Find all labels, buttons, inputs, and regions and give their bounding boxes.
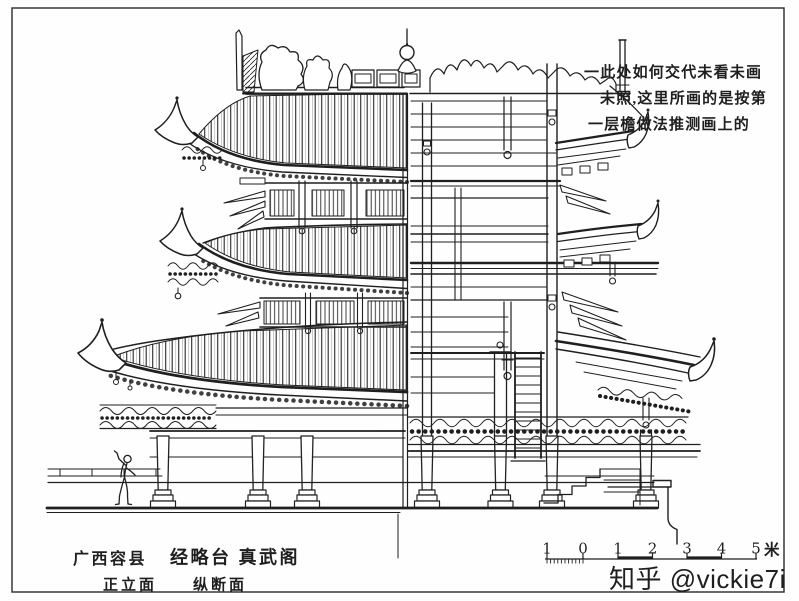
label-longitudinal-section: 纵断面 xyxy=(193,576,247,594)
hanging-post xyxy=(502,97,513,159)
eave-horn-low-left xyxy=(78,322,126,371)
eave-horn-mid-right xyxy=(637,203,658,239)
scale-bar: 1 0 1 2 3 4 5 米 xyxy=(542,540,780,564)
eave-horn-top-left xyxy=(155,100,198,145)
scale-tick-label: 3 xyxy=(682,540,692,558)
porch-column xyxy=(295,436,320,508)
roof-tier-top xyxy=(155,93,407,182)
right-eave-lower xyxy=(556,332,716,412)
ridge-beast-3 xyxy=(338,64,352,90)
label-front-elevation: 正立面 xyxy=(103,576,157,594)
roof-tier-middle xyxy=(160,207,407,298)
scale-tick-label: 1 xyxy=(542,540,552,558)
terrace-ground xyxy=(47,469,677,544)
section-beams xyxy=(411,101,658,393)
ridge-beast-2 xyxy=(303,56,332,90)
drawing-canvas: 一此处如何交代未看未画 未照,这里所画的是按第 一层檐做法推测画上的 广西容县 … xyxy=(0,0,799,601)
annotation-note: 一此处如何交代未看未画 未照,这里所画的是按第 一层檐做法推测画上的 xyxy=(584,63,767,133)
scanned-architectural-drawing: 一此处如何交代未看未画 未照,这里所画的是按第 一层檐做法推测画上的 广西容县 … xyxy=(0,0,799,601)
scale-tick-label: 4 xyxy=(717,540,727,558)
scale-tick-label: 0 xyxy=(578,540,588,558)
ground-floor-colonnade xyxy=(150,431,405,508)
roof-finial xyxy=(398,29,416,73)
ridge-beast-1 xyxy=(259,45,303,90)
eave-bracket-band xyxy=(100,405,407,429)
scale-tick-label: 2 xyxy=(648,540,658,558)
elevation-front xyxy=(78,29,420,508)
annotation-line-1: 一此处如何交代未看未画 xyxy=(584,63,762,81)
section-right-eaves xyxy=(556,109,716,413)
eave-horn-low-right xyxy=(689,341,715,381)
right-eave-middle xyxy=(558,200,660,341)
title-block: 广西容县 经略台 真武阁 正立面 纵断面 xyxy=(73,547,300,594)
pavilion-drawing xyxy=(47,29,716,558)
ridge-ornaments xyxy=(236,30,420,94)
watermark: 知乎 @vickie7i xyxy=(609,564,786,594)
title-location: 广西容县 xyxy=(73,549,147,568)
scale-tick-label: 1 xyxy=(613,540,623,558)
human-figure xyxy=(115,451,136,505)
scale-unit-label: 米 xyxy=(764,540,780,559)
hanging-post xyxy=(502,302,513,380)
porch-column xyxy=(151,436,176,508)
section-cut xyxy=(408,40,716,508)
roof-tier-lower xyxy=(78,318,407,406)
porch-column xyxy=(246,436,271,508)
annotation-line-2: 未照,这里所画的是按第 xyxy=(599,89,767,107)
bracket-spikes xyxy=(224,191,265,203)
annotation-line-3: 一层檐做法推测画上的 xyxy=(588,115,750,133)
title-building: 经略台 真武阁 xyxy=(170,547,300,568)
scale-tick-label: 5 xyxy=(751,540,761,558)
eave-horn-mid-left xyxy=(160,211,203,256)
